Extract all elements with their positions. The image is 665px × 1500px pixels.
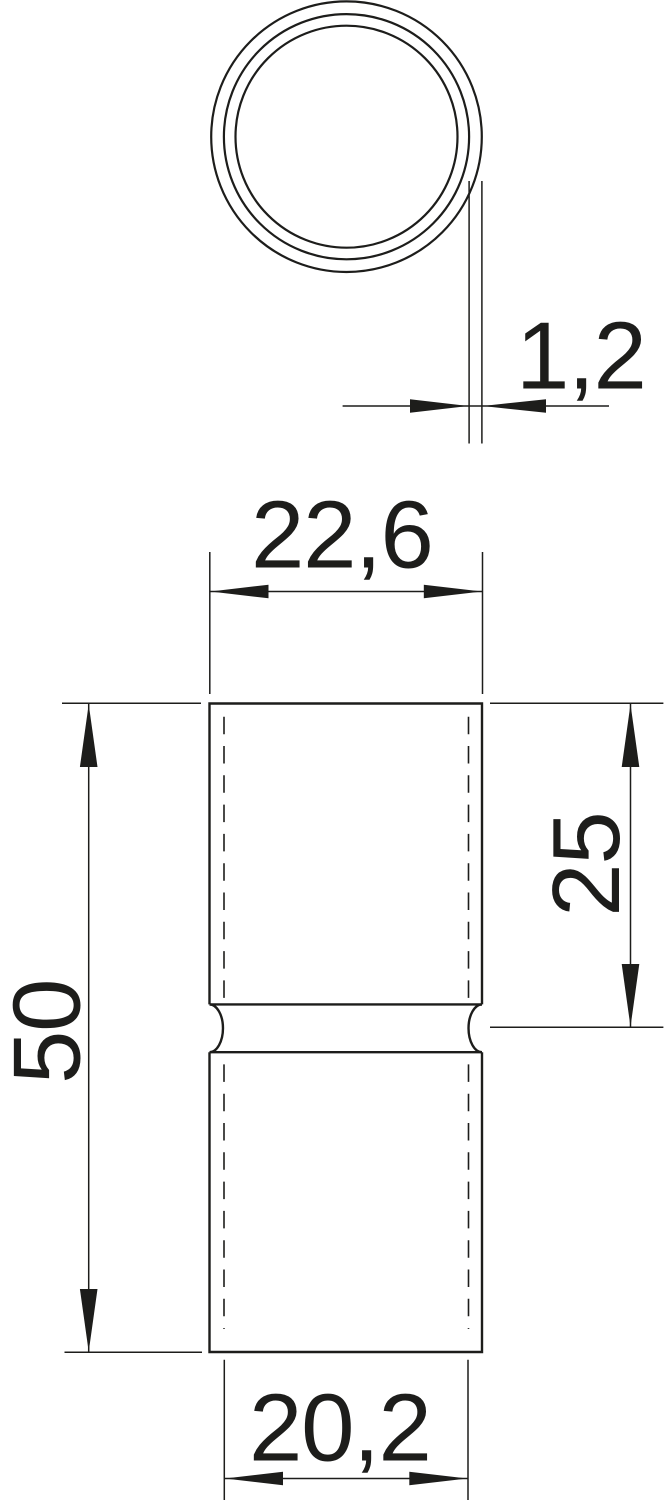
- svg-text:1,2: 1,2: [516, 303, 646, 410]
- svg-text:50: 50: [0, 980, 100, 1084]
- svg-text:25: 25: [533, 813, 640, 917]
- svg-text:20,2: 20,2: [249, 1375, 431, 1482]
- svg-text:22,6: 22,6: [251, 482, 433, 589]
